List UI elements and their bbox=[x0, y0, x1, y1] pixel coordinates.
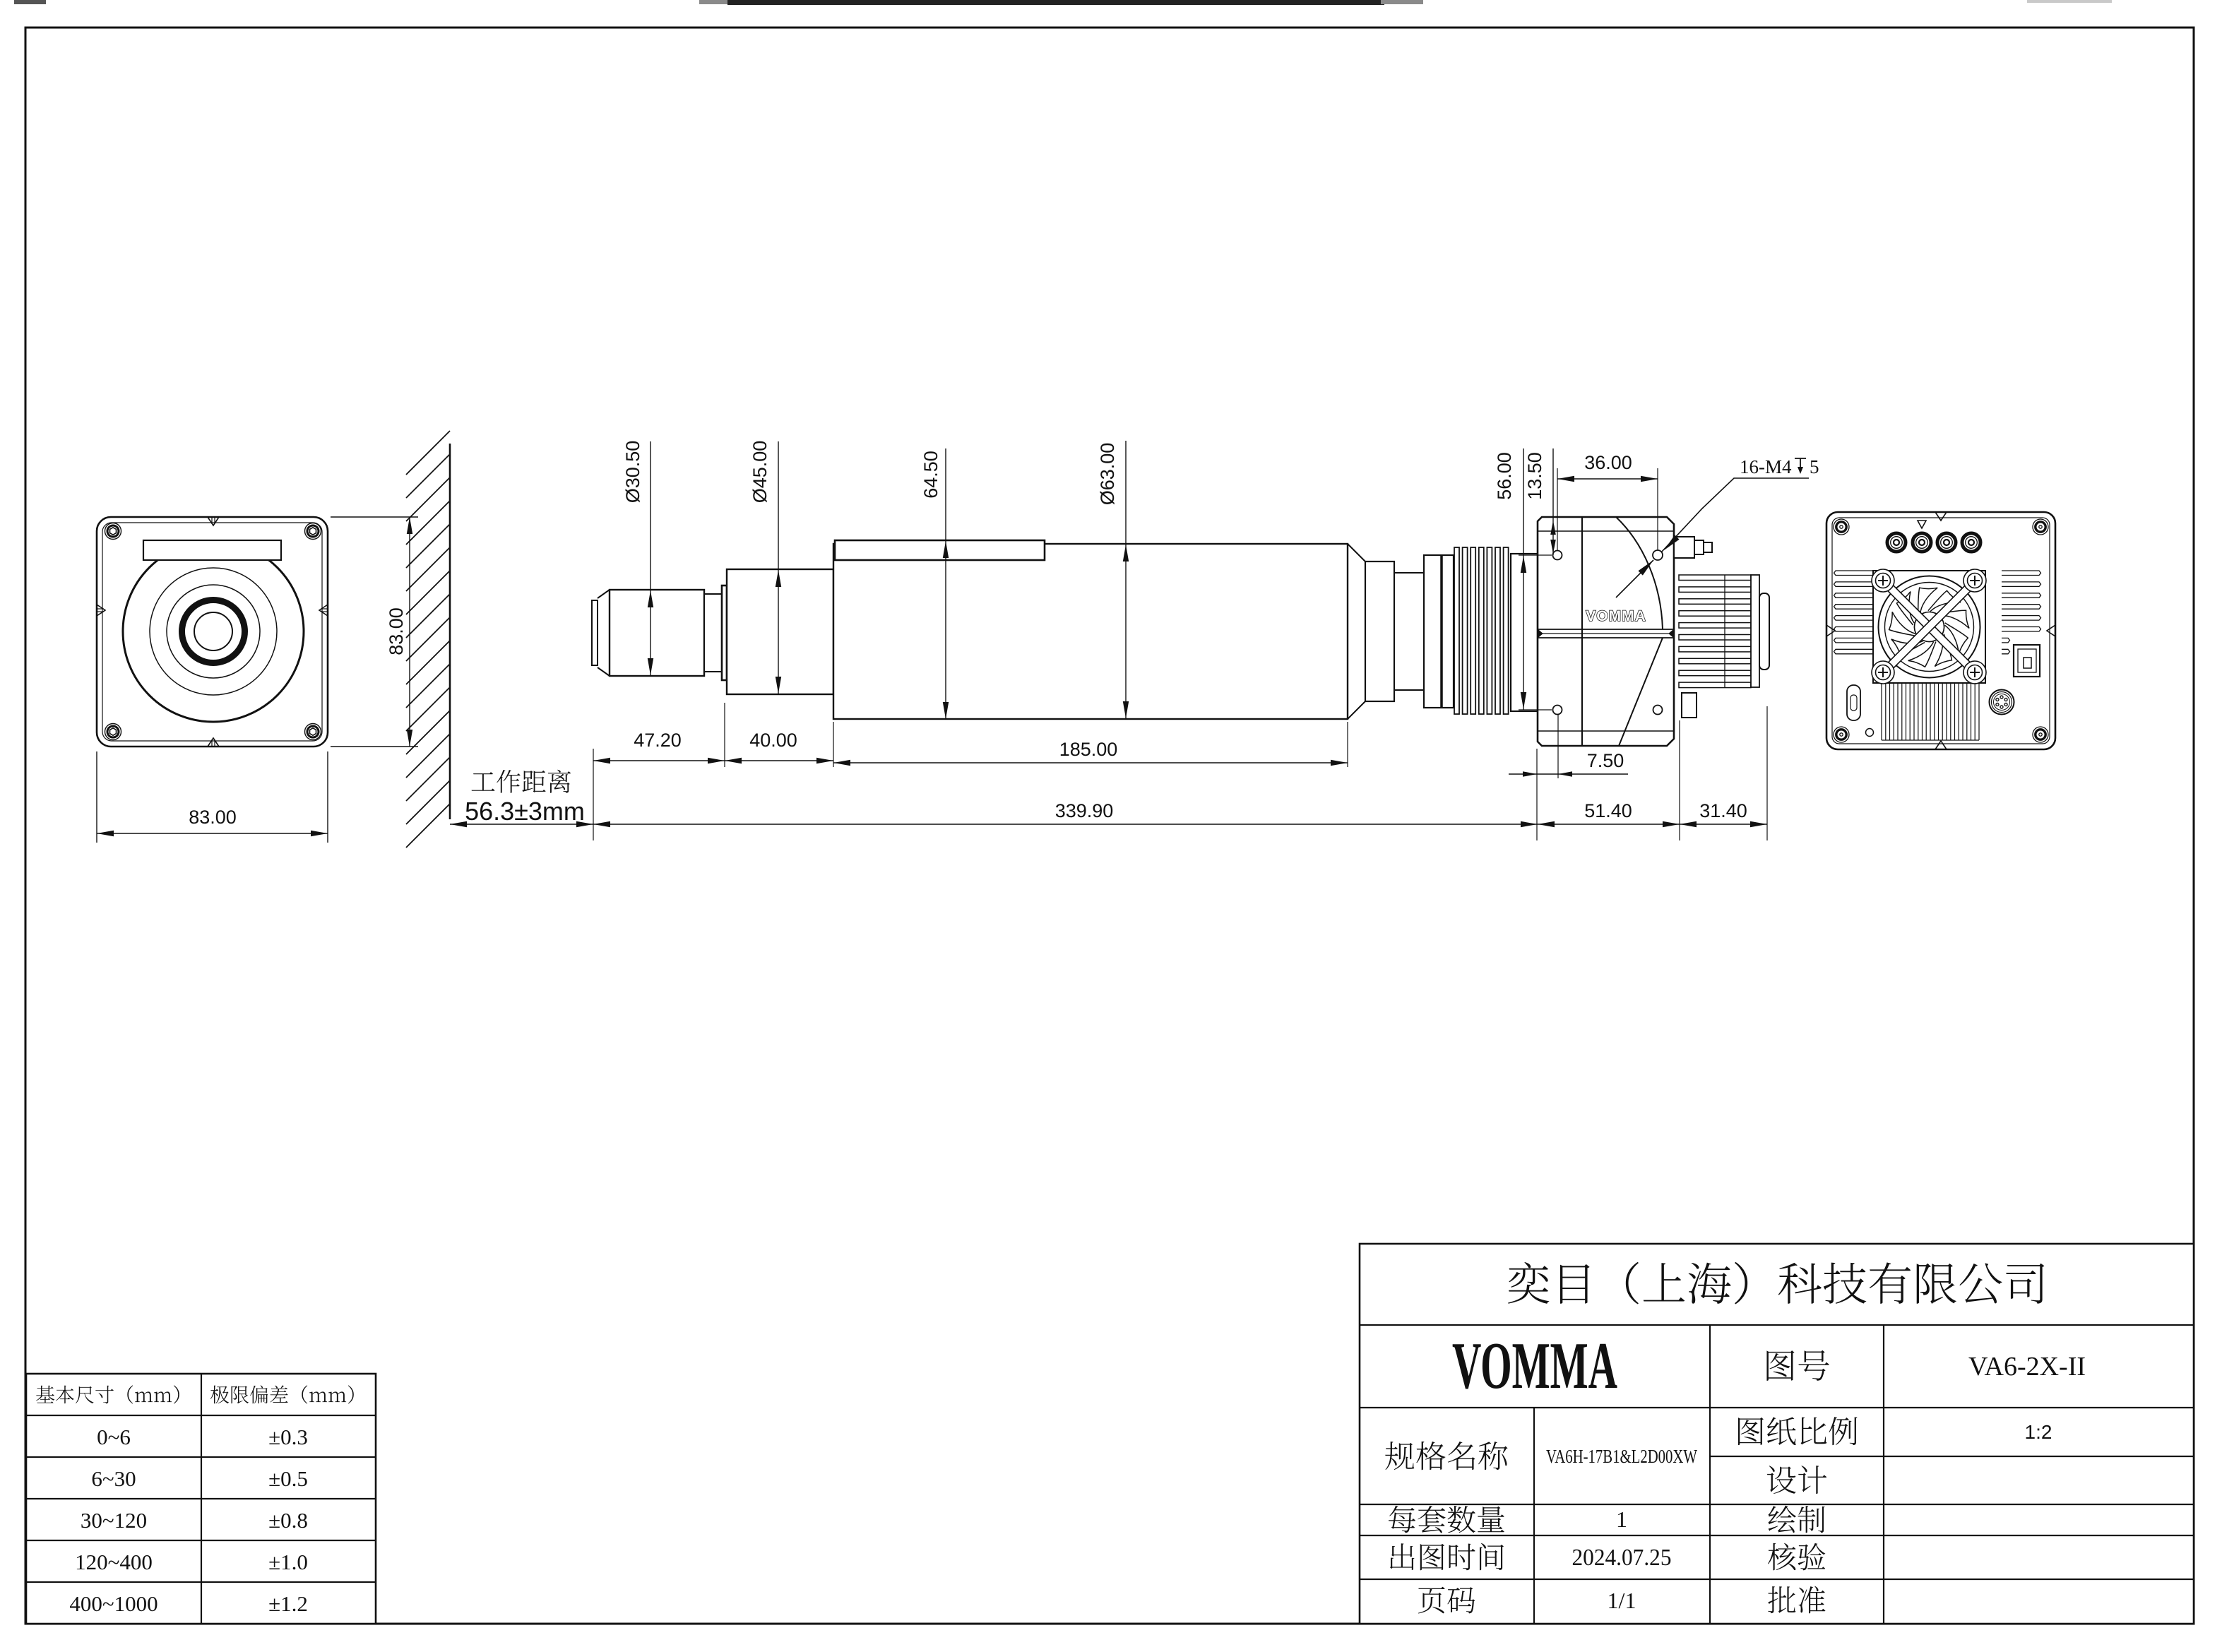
svg-text:1/1: 1/1 bbox=[1608, 1588, 1636, 1613]
svg-text:83.00: 83.00 bbox=[386, 607, 407, 655]
svg-text:1: 1 bbox=[1616, 1507, 1627, 1532]
svg-text:56.00: 56.00 bbox=[1494, 452, 1515, 500]
svg-text:83.00: 83.00 bbox=[189, 807, 237, 828]
svg-text:6~30: 6~30 bbox=[91, 1466, 136, 1491]
svg-text:±0.3: ±0.3 bbox=[268, 1425, 308, 1449]
svg-text:7.50: 7.50 bbox=[1587, 750, 1624, 771]
svg-text:120~400: 120~400 bbox=[75, 1550, 153, 1574]
svg-text:Ø63.00: Ø63.00 bbox=[1097, 443, 1118, 506]
svg-text:±1.0: ±1.0 bbox=[268, 1550, 308, 1574]
svg-text:31.40: 31.40 bbox=[1699, 800, 1747, 821]
svg-text:5: 5 bbox=[1810, 456, 1819, 477]
svg-text:30~120: 30~120 bbox=[81, 1508, 147, 1533]
svg-text:VOMMA: VOMMA bbox=[1452, 1329, 1617, 1403]
svg-text:±1.2: ±1.2 bbox=[268, 1591, 308, 1616]
svg-text:VOMMA: VOMMA bbox=[1586, 608, 1646, 624]
svg-text:Ø30.50: Ø30.50 bbox=[622, 441, 643, 504]
svg-text:185.00: 185.00 bbox=[1059, 739, 1118, 760]
svg-text:±0.5: ±0.5 bbox=[268, 1466, 308, 1491]
svg-text:1:2: 1:2 bbox=[2025, 1421, 2052, 1443]
svg-text:64.50: 64.50 bbox=[920, 451, 941, 499]
svg-text:VA6H-17B1&L2D00XW: VA6H-17B1&L2D00XW bbox=[1546, 1446, 1697, 1467]
svg-text:36.00: 36.00 bbox=[1584, 452, 1632, 473]
svg-text:Ø45.00: Ø45.00 bbox=[749, 441, 771, 504]
svg-text:0~6: 0~6 bbox=[97, 1425, 131, 1449]
svg-text:40.00: 40.00 bbox=[749, 730, 797, 751]
svg-text:16-M4: 16-M4 bbox=[1740, 456, 1792, 477]
svg-text:400~1000: 400~1000 bbox=[69, 1591, 158, 1616]
svg-text:56.3±3mm: 56.3±3mm bbox=[465, 797, 585, 826]
svg-text:47.20: 47.20 bbox=[634, 730, 682, 751]
svg-text:13.50: 13.50 bbox=[1524, 452, 1545, 500]
svg-text:±0.8: ±0.8 bbox=[268, 1508, 308, 1533]
svg-text:339.90: 339.90 bbox=[1055, 800, 1114, 821]
svg-text:VA6-2X-II: VA6-2X-II bbox=[1968, 1352, 2086, 1381]
svg-text:51.40: 51.40 bbox=[1584, 800, 1632, 821]
svg-text:2024.07.25: 2024.07.25 bbox=[1572, 1545, 1672, 1571]
